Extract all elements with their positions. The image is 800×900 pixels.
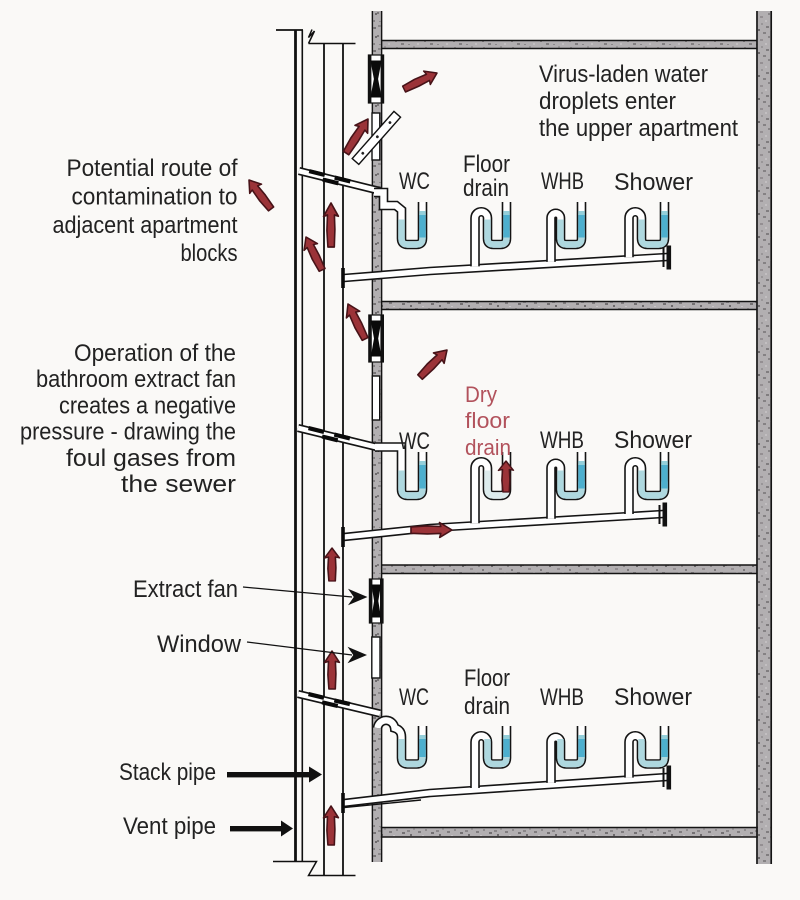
svg-text:Stack pipe: Stack pipe (119, 759, 216, 786)
svg-text:drain: drain (465, 435, 511, 460)
svg-text:bathroom extract fan: bathroom extract fan (36, 366, 236, 393)
svg-text:Vent pipe: Vent pipe (123, 813, 216, 840)
svg-text:Shower: Shower (614, 684, 692, 711)
svg-text:WC: WC (399, 684, 429, 711)
svg-text:WHB: WHB (541, 168, 584, 195)
svg-text:contamination to: contamination to (72, 183, 238, 210)
svg-text:WHB: WHB (540, 427, 584, 454)
svg-text:blocks: blocks (181, 240, 238, 267)
svg-text:Window: Window (157, 631, 242, 658)
svg-text:adjacent apartment: adjacent apartment (53, 212, 238, 239)
svg-text:floor: floor (465, 408, 510, 433)
svg-text:WC: WC (399, 168, 430, 195)
svg-text:drain: drain (464, 693, 510, 720)
svg-text:WHB: WHB (540, 684, 584, 711)
svg-text:Shower: Shower (614, 427, 692, 454)
svg-text:Operation of the: Operation of the (74, 340, 236, 367)
svg-text:the upper apartment: the upper apartment (539, 115, 738, 142)
svg-text:drain: drain (463, 175, 509, 202)
svg-text:pressure - drawing the: pressure - drawing the (20, 419, 236, 446)
svg-text:the sewer: the sewer (121, 471, 236, 498)
svg-text:foul gases from: foul gases from (66, 445, 236, 472)
svg-text:Potential route of: Potential route of (67, 155, 238, 182)
svg-text:WC: WC (399, 428, 430, 455)
svg-text:Floor: Floor (463, 151, 510, 178)
svg-text:Virus-laden water: Virus-laden water (539, 61, 708, 88)
svg-text:Dry: Dry (465, 382, 497, 407)
svg-text:creates a negative: creates a negative (59, 392, 236, 419)
svg-text:Shower: Shower (614, 169, 693, 196)
svg-text:Floor: Floor (464, 665, 510, 692)
svg-text:droplets enter: droplets enter (539, 88, 676, 115)
svg-text:Extract fan: Extract fan (133, 576, 238, 603)
